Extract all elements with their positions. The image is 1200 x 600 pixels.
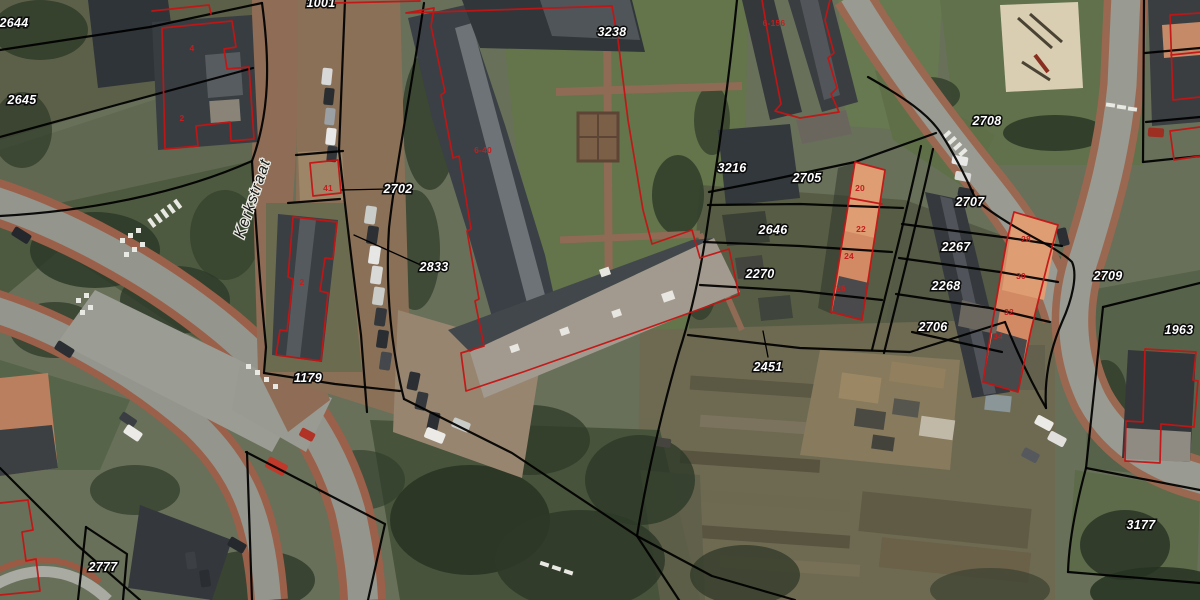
parcel-label-2268: 2268	[930, 279, 960, 293]
house-number-20: 20	[855, 183, 865, 193]
house-number-2: 2	[300, 277, 305, 287]
parcel-label-2709: 2709	[1092, 269, 1122, 283]
house-number-32: 32	[1004, 307, 1014, 317]
house-number-6-40: 6-40	[474, 145, 492, 155]
parcel-label-2705: 2705	[791, 171, 822, 185]
building-topright	[1148, 0, 1200, 126]
parcel-label-3177: 3177	[1126, 518, 1156, 532]
house-number-34: 34	[993, 331, 1003, 341]
parcel-label-2644: 2644	[0, 16, 29, 30]
parcel-label-2645: 2645	[6, 93, 37, 107]
map-canvas[interactable]: 2644264510013238270228331179321627052646…	[0, 0, 1200, 600]
parcel-label-1963: 1963	[1164, 323, 1193, 337]
parcel-label-1179: 1179	[294, 371, 322, 385]
parcel-label-2267: 2267	[940, 240, 971, 254]
parcel-label-3216: 3216	[717, 161, 747, 175]
shed-2270	[758, 295, 793, 321]
parcel-label-2451: 2451	[752, 360, 782, 374]
playground-sand	[1000, 2, 1083, 92]
house-number-2: 2	[180, 113, 185, 123]
house-number-6-156: 6-156	[763, 18, 786, 28]
aerial-photo-layer	[0, 0, 1200, 600]
house-number-24: 24	[844, 251, 854, 261]
nw-driveway	[209, 99, 240, 123]
house-number-22: 22	[856, 224, 866, 234]
parcel-label-2702: 2702	[382, 182, 412, 196]
parcel-label-3238: 3238	[597, 25, 626, 39]
building-bottomleft-dark	[0, 425, 58, 476]
parcel-label-2833: 2833	[418, 260, 448, 274]
parcel-label-1001: 1001	[306, 0, 335, 10]
parcel-label-2777: 2777	[87, 560, 118, 574]
house-number-41: 41	[323, 183, 333, 193]
house-number-26: 26	[836, 283, 846, 293]
house-number-30: 30	[1016, 271, 1026, 281]
map-viewport[interactable]: 2644264510013238270228331179321627052646…	[0, 0, 1200, 600]
parcel-label-2707: 2707	[954, 195, 985, 209]
house-number-28: 28	[1021, 234, 1031, 244]
parcel-label-2708: 2708	[971, 114, 1001, 128]
parcel-label-2706: 2706	[917, 320, 948, 334]
house-number-4: 4	[190, 43, 195, 53]
parcel-label-2270: 2270	[744, 267, 774, 281]
building-1963-pale	[1124, 428, 1191, 462]
parcel-label-2646: 2646	[757, 223, 788, 237]
parcel-line	[1143, 0, 1144, 162]
